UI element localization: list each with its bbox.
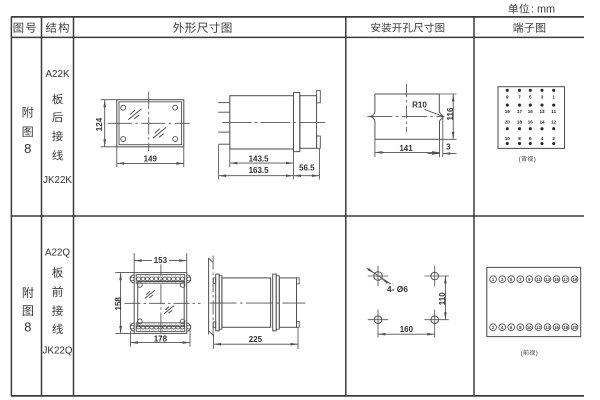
- svg-text:3: 3: [541, 94, 544, 99]
- svg-text:9: 9: [506, 94, 509, 99]
- svg-text:16: 16: [528, 120, 534, 125]
- svg-text:10: 10: [505, 136, 511, 141]
- svg-text:124: 124: [95, 117, 104, 131]
- svg-text:20: 20: [572, 325, 577, 330]
- svg-text:15: 15: [528, 109, 534, 114]
- svg-text:18: 18: [517, 120, 523, 125]
- svg-text:160: 160: [400, 325, 414, 334]
- svg-text:14: 14: [545, 325, 550, 330]
- svg-text:13: 13: [539, 109, 545, 114]
- svg-text:12: 12: [551, 120, 557, 125]
- svg-text:110: 110: [438, 292, 447, 305]
- svg-text:14: 14: [539, 120, 545, 125]
- svg-text:225: 225: [249, 335, 263, 344]
- svg-text:141: 141: [399, 144, 413, 153]
- svg-text:3: 3: [446, 143, 451, 152]
- svg-text:10: 10: [527, 325, 532, 330]
- svg-text:6: 6: [529, 136, 532, 141]
- svg-text:5: 5: [529, 94, 532, 99]
- svg-text:2: 2: [552, 136, 555, 141]
- svg-text:): ): [536, 350, 538, 357]
- svg-text:18: 18: [563, 325, 568, 330]
- svg-text:178: 178: [154, 334, 168, 343]
- svg-text:R10: R10: [412, 100, 427, 109]
- svg-text:): ): [534, 156, 536, 163]
- svg-text:13: 13: [545, 277, 550, 282]
- svg-text:1: 1: [552, 94, 555, 99]
- svg-text:8: 8: [518, 136, 521, 141]
- svg-text:17: 17: [563, 277, 568, 282]
- svg-text:20: 20: [505, 120, 511, 125]
- svg-text:16: 16: [554, 325, 559, 330]
- svg-text:158: 158: [114, 297, 123, 311]
- svg-text:7: 7: [518, 94, 521, 99]
- svg-text:15: 15: [554, 277, 559, 282]
- svg-text:11: 11: [536, 277, 541, 282]
- svg-text:56.5: 56.5: [299, 163, 315, 172]
- svg-text:A22K: A22K: [46, 69, 70, 80]
- svg-text:: mm: : mm: [531, 4, 555, 16]
- svg-text:19: 19: [572, 277, 577, 282]
- svg-text:8: 8: [24, 319, 31, 334]
- svg-text:JK22Q: JK22Q: [43, 346, 73, 357]
- svg-text:A22Q: A22Q: [45, 247, 70, 258]
- svg-text:8: 8: [24, 141, 31, 156]
- svg-text:149: 149: [144, 155, 158, 164]
- svg-text:143.5: 143.5: [249, 155, 270, 164]
- svg-text:12: 12: [536, 325, 541, 330]
- svg-text:11: 11: [551, 109, 556, 114]
- svg-text:163.5: 163.5: [249, 166, 270, 175]
- svg-text:4: 4: [541, 136, 544, 141]
- svg-text:153: 153: [154, 256, 168, 265]
- svg-text:116: 116: [446, 107, 455, 120]
- svg-text:17: 17: [517, 109, 523, 114]
- svg-text:19: 19: [505, 109, 511, 114]
- svg-text:4- Ø6: 4- Ø6: [387, 284, 408, 294]
- svg-text:JK22K: JK22K: [43, 175, 72, 186]
